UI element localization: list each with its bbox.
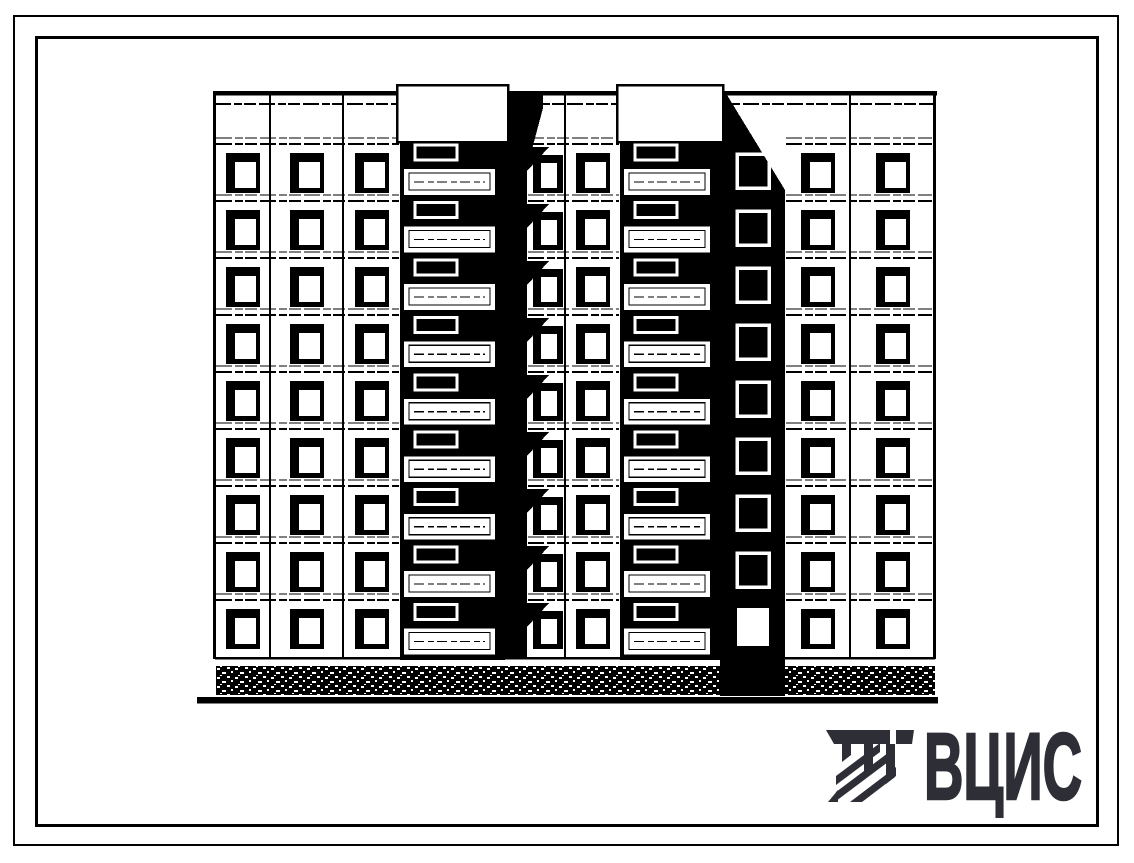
brand-logo: ВЦИС (824, 710, 1096, 818)
brand-logo-graphic: ВЦИС (824, 710, 1096, 818)
brand-emblem-icon (826, 730, 914, 802)
brand-wordmark: ВЦИС (924, 714, 1082, 818)
drawing-sheet: ВЦИС (0, 0, 1134, 863)
